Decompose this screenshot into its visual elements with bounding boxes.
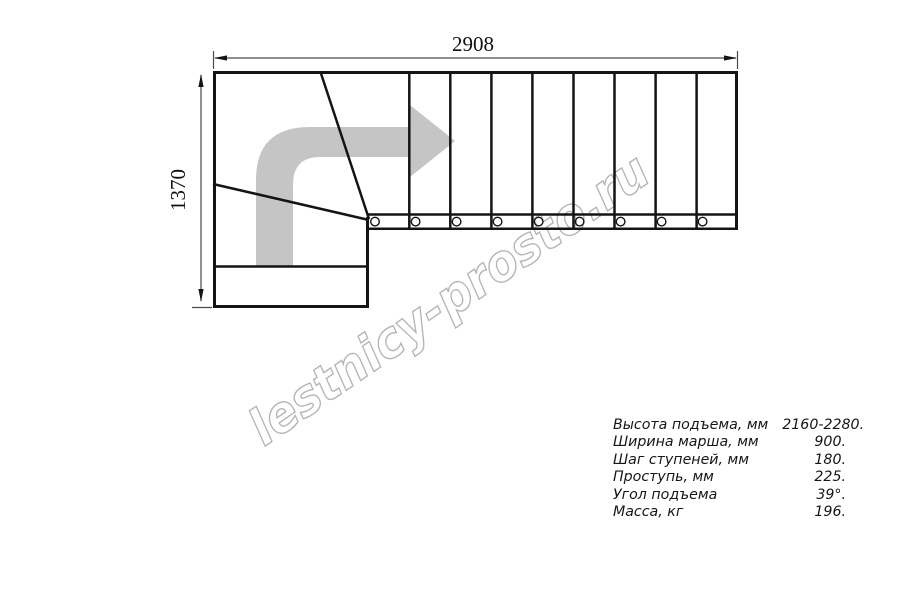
spec-row: Шаг ступеней, мм 180. (613, 452, 846, 469)
spec-value: 39°. (802, 487, 846, 504)
spec-row: Проступь, мм 225. (613, 469, 846, 486)
dimension-arrow-right (724, 55, 737, 60)
spec-row: Высота подъема, мм 2160-2280. (613, 417, 846, 434)
dimension-arrow-bottom (198, 289, 203, 302)
dimension-arrow-top (198, 74, 203, 87)
width-dimension: 2908 (214, 32, 738, 69)
direction-arrow (256, 105, 455, 266)
width-dimension-label: 2908 (452, 32, 494, 56)
baluster-circle (493, 217, 502, 226)
spec-label: Проступь, мм (613, 469, 714, 486)
spec-value: 2160-2280. (768, 417, 864, 434)
baluster-circle (411, 217, 420, 226)
spec-row: Ширина марша, мм 900. (613, 434, 846, 451)
spec-row: Масса, кг 196. (613, 504, 846, 521)
height-dimension: 1370 (166, 74, 212, 308)
baluster-circle (616, 217, 625, 226)
height-dimension-label: 1370 (166, 169, 190, 211)
spec-value: 196. (800, 504, 846, 521)
baluster-circle (452, 217, 461, 226)
spec-label: Шаг ступеней, мм (613, 452, 749, 469)
spec-label: Ширина марша, мм (613, 434, 759, 451)
dimension-arrow-left (214, 55, 227, 60)
spec-label: Угол подъема (613, 487, 717, 504)
spec-value: 225. (800, 469, 846, 486)
baluster-circle (698, 217, 707, 226)
baluster-circle (371, 217, 380, 226)
spec-row: Угол подъема 39°. (613, 487, 846, 504)
spec-value: 180. (800, 452, 846, 469)
baluster-circle (657, 217, 666, 226)
watermark-text: lestnicy-prosto.ru (238, 142, 660, 457)
stair-drawing-canvas: lestnicy-prosto.ru (0, 0, 900, 600)
spec-label: Масса, кг (613, 504, 683, 521)
spec-table: Высота подъема, мм 2160-2280. Ширина мар… (613, 417, 846, 521)
spec-label: Высота подъема, мм (613, 417, 768, 434)
spec-value: 900. (800, 434, 846, 451)
